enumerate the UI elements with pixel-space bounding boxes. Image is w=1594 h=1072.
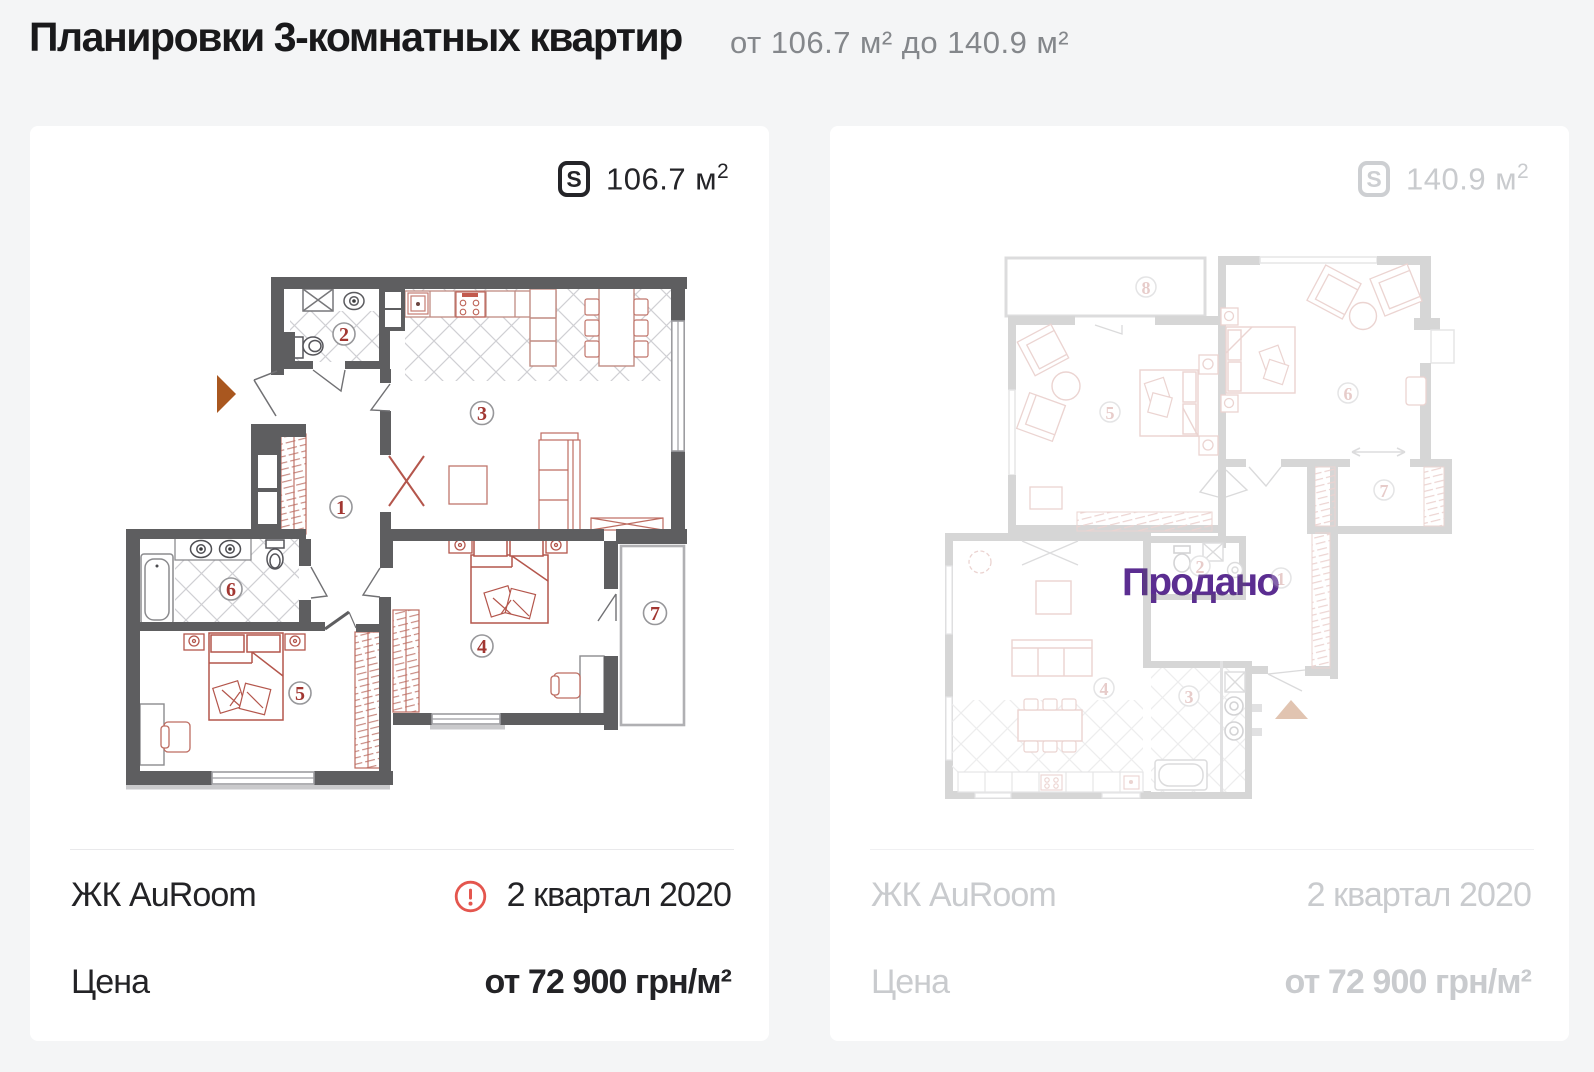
svg-text:6: 6: [1344, 384, 1353, 404]
svg-text:6: 6: [226, 579, 236, 601]
svg-text:7: 7: [650, 603, 660, 625]
svg-text:8: 8: [1142, 278, 1151, 298]
svg-text:4: 4: [477, 636, 487, 658]
svg-text:7: 7: [1380, 481, 1389, 501]
svg-text:2: 2: [1196, 557, 1205, 577]
svg-text:2: 2: [339, 324, 349, 346]
svg-text:1: 1: [336, 497, 346, 519]
svg-text:5: 5: [1106, 403, 1115, 423]
svg-text:1: 1: [1277, 569, 1286, 589]
svg-text:4: 4: [1100, 679, 1109, 699]
svg-text:5: 5: [295, 683, 305, 705]
svg-text:3: 3: [1185, 687, 1194, 707]
svg-text:3: 3: [477, 403, 487, 425]
